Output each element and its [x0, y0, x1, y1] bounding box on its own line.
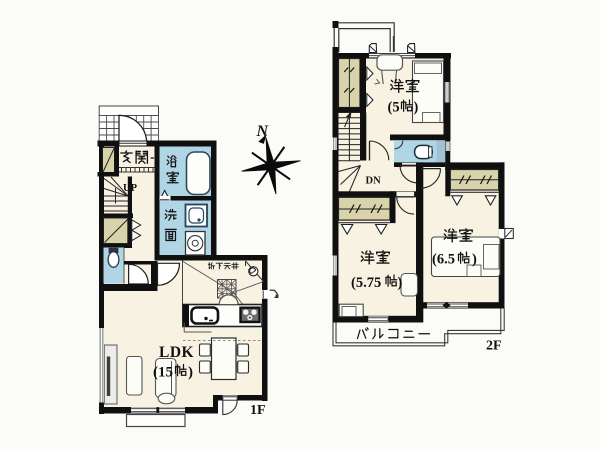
svg-text:2F: 2F: [486, 339, 502, 354]
svg-text:(5.75: (5.75: [351, 275, 381, 291]
svg-text:(5: (5: [388, 100, 400, 116]
svg-text:LDK: LDK: [159, 344, 194, 361]
svg-text:N: N: [256, 123, 270, 140]
svg-text:(6.5: (6.5: [432, 252, 455, 268]
svg-text:(15: (15: [153, 365, 173, 381]
svg-text:): ): [398, 275, 403, 291]
svg-text:): ): [472, 252, 477, 268]
svg-text:): ): [188, 365, 193, 381]
svg-text:DN: DN: [366, 176, 382, 187]
svg-text:): ): [414, 100, 419, 116]
svg-text:1F: 1F: [250, 403, 266, 418]
